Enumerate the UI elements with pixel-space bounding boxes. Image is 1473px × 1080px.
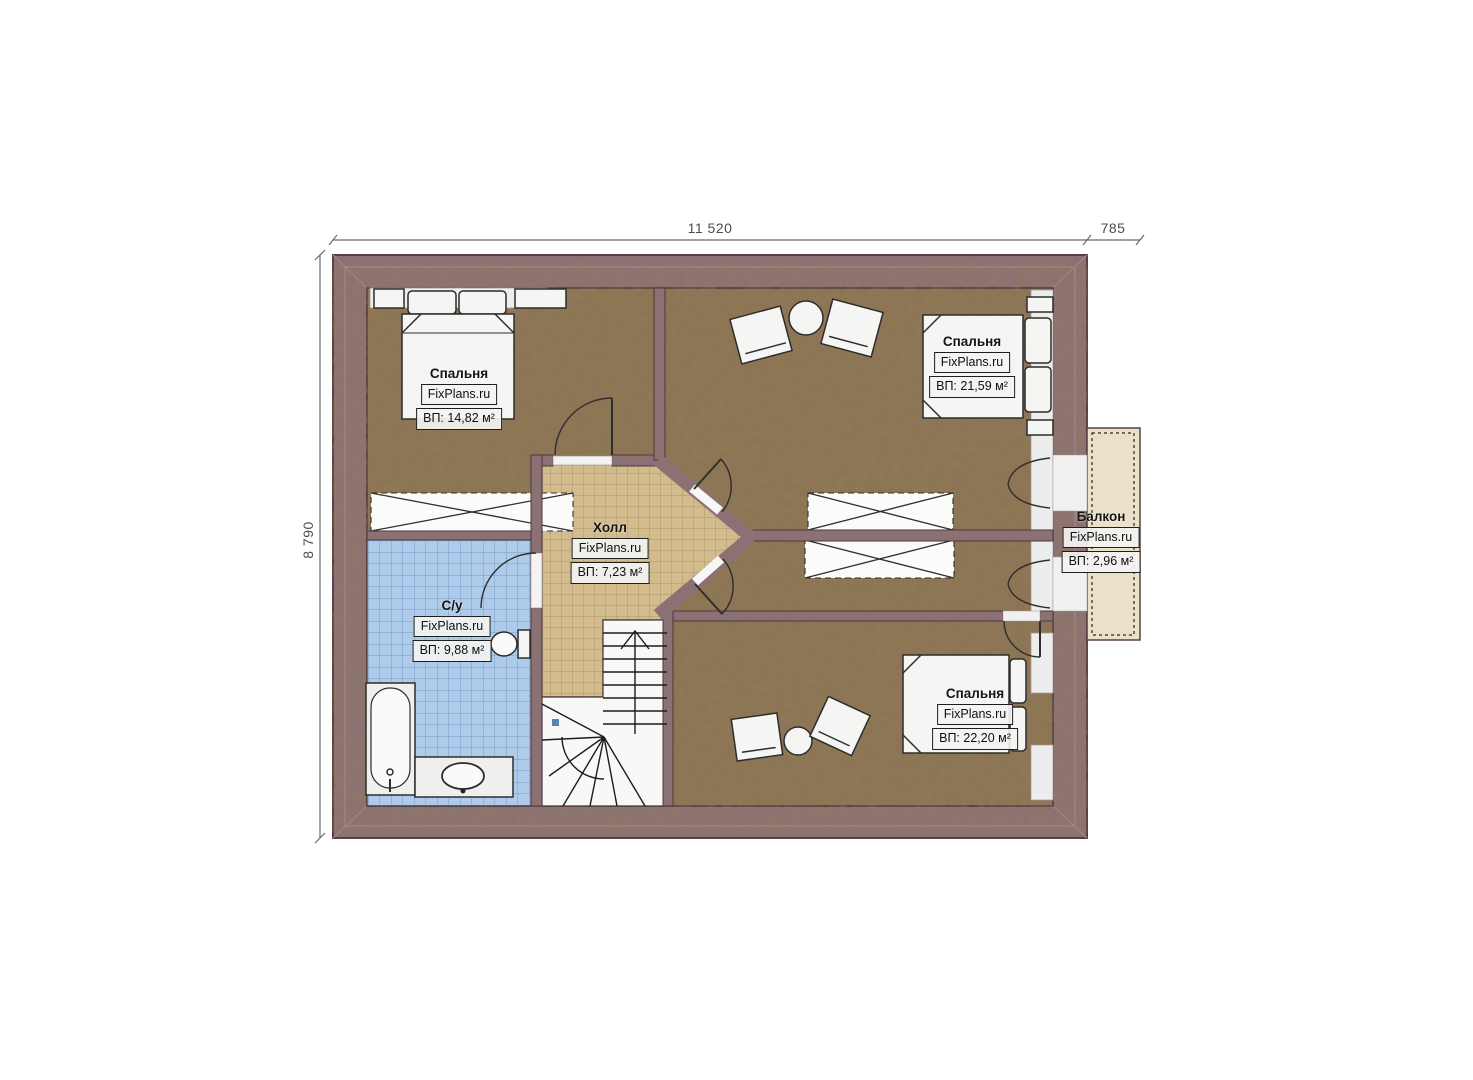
brand-tag: FixPlans.ru: [421, 384, 498, 405]
floor-plan-canvas: [0, 0, 1473, 1080]
brand-tag: FixPlans.ru: [934, 352, 1011, 373]
room-label-balcony: Балкон FixPlans.ru ВП: 2,96 м²: [1062, 509, 1141, 573]
bathtub: [366, 683, 415, 795]
dimension-top-main: 11 520: [688, 220, 733, 236]
dimension-left-total: 8 790: [300, 521, 316, 559]
toilet: [491, 630, 530, 658]
room-name: С/у: [441, 598, 462, 613]
area-tag: ВП: 22,20 м²: [932, 728, 1018, 749]
area-tag: ВП: 7,23 м²: [571, 562, 650, 583]
room-name: Спальня: [943, 334, 1001, 349]
room-name: Холл: [593, 520, 627, 535]
room-label-bathroom: С/у FixPlans.ru ВП: 9,88 м²: [413, 598, 492, 662]
vanity-sink: [415, 757, 513, 797]
area-tag: ВП: 14,82 м²: [416, 408, 502, 429]
area-tag: ВП: 21,59 м²: [929, 376, 1015, 397]
area-tag: ВП: 9,88 м²: [413, 640, 492, 661]
room-label-bedroom-top-right: Спальня FixPlans.ru ВП: 21,59 м²: [929, 334, 1015, 398]
room-name: Балкон: [1077, 509, 1126, 524]
room-label-bedroom-bottom-right: Спальня FixPlans.ru ВП: 22,20 м²: [932, 686, 1018, 750]
area-tag: ВП: 2,96 м²: [1062, 551, 1141, 572]
brand-tag: FixPlans.ru: [1063, 527, 1140, 548]
room-label-hall: Холл FixPlans.ru ВП: 7,23 м²: [571, 520, 650, 584]
brand-tag: FixPlans.ru: [572, 538, 649, 559]
room-name: Спальня: [946, 686, 1004, 701]
brand-tag: FixPlans.ru: [937, 704, 1014, 725]
room-label-bedroom-top-left: Спальня FixPlans.ru ВП: 14,82 м²: [416, 366, 502, 430]
dimension-top-balcony: 785: [1101, 220, 1126, 236]
brand-tag: FixPlans.ru: [414, 616, 491, 637]
floor-plan-page: 11 520 785 8 790 Спальня FixPlans.ru ВП:…: [0, 0, 1473, 1080]
room-name: Спальня: [430, 366, 488, 381]
